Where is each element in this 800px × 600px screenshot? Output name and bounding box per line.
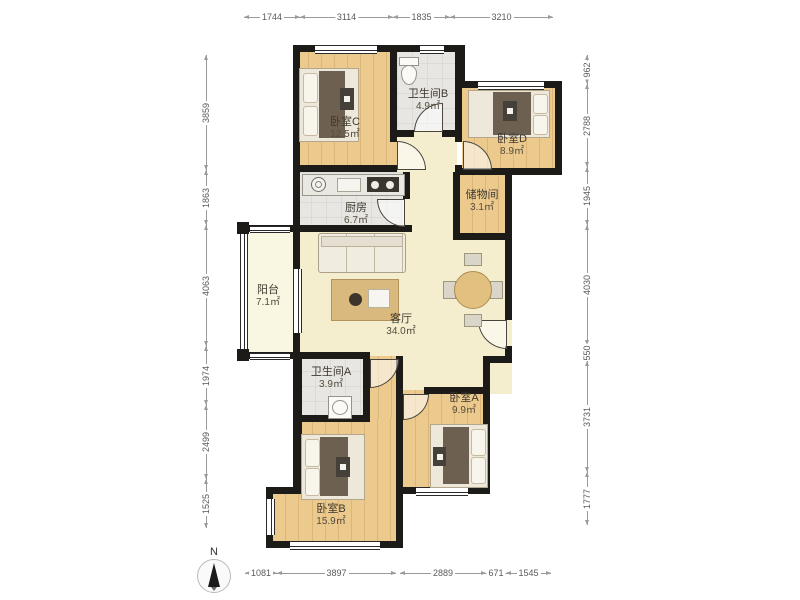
dim-bottom-1: 3897 bbox=[277, 566, 396, 580]
window-balcony-top bbox=[250, 226, 290, 233]
kettle-icon bbox=[349, 293, 362, 306]
window-bedroomA bbox=[416, 487, 468, 496]
dim-right-0: 962 bbox=[580, 55, 594, 84]
bed-bedroomB bbox=[301, 434, 365, 500]
dim-top-0: 1744 bbox=[244, 10, 300, 24]
dim-right-4: 550 bbox=[580, 345, 594, 361]
dim-right-5: 3731 bbox=[580, 361, 594, 472]
nightstand-bedroomA bbox=[433, 447, 446, 466]
dim-top-3: 3210 bbox=[450, 10, 553, 24]
dining-chair bbox=[464, 253, 482, 266]
pillow bbox=[471, 429, 486, 456]
dim-right-1: 2788 bbox=[580, 84, 594, 167]
window-bedroomD bbox=[478, 81, 544, 90]
dim-right-3: 4030 bbox=[580, 225, 594, 345]
stove-icon bbox=[367, 177, 399, 192]
wall-storage-left bbox=[453, 172, 460, 240]
window-balcony-bottom bbox=[250, 353, 290, 360]
dim-left-1: 1863 bbox=[199, 170, 213, 225]
pillow bbox=[533, 94, 548, 114]
wall-right-mid bbox=[505, 168, 512, 320]
room-label-bedroomB: 卧室B15.9㎡ bbox=[316, 503, 345, 528]
wall-divider-C-bathB bbox=[390, 45, 397, 142]
dim-top-1: 3114 bbox=[300, 10, 393, 24]
room-label-bedroomD: 卧室D8.9㎡ bbox=[497, 133, 527, 158]
wall-storage-bottom bbox=[453, 233, 512, 240]
nightstand-bedroomC bbox=[340, 88, 354, 110]
pillow bbox=[303, 73, 318, 103]
cutting-board-icon bbox=[337, 178, 361, 192]
dim-bottom-4: 1545 bbox=[506, 566, 551, 580]
window-balcony bbox=[240, 234, 248, 349]
dining-chair bbox=[464, 314, 482, 327]
dim-bottom-2: 2889 bbox=[400, 566, 486, 580]
pillow bbox=[533, 115, 548, 135]
nightstand-bedroomD bbox=[503, 101, 517, 121]
room-label-bedroomA: 卧室A9.9㎡ bbox=[449, 392, 478, 417]
nightstand-bedroomB bbox=[336, 457, 350, 477]
wall-bathB-bottom-left bbox=[390, 130, 414, 137]
dim-left-3: 1974 bbox=[199, 346, 213, 405]
floorplan-canvas: 卧室C12.5㎡ 卫生间B4.9㎡ 卧室D8.9㎡ 厨房6.7㎡ 储物间3.1㎡… bbox=[0, 0, 800, 600]
wall-bedroomC-bottom bbox=[293, 165, 397, 172]
dim-bottom-0: 1081 bbox=[245, 566, 277, 580]
window-bedroomC bbox=[315, 45, 377, 54]
room-bedroomB-floor-ext bbox=[273, 494, 303, 544]
compass-tail-icon bbox=[211, 587, 217, 591]
bed-bedroomA bbox=[430, 424, 488, 488]
wall-bathA-top bbox=[295, 352, 370, 359]
north-compass-icon: N bbox=[196, 546, 232, 593]
compass-dial bbox=[197, 559, 231, 593]
wall-bathB-right-lower bbox=[455, 88, 462, 142]
dim-left-2: 4063 bbox=[199, 225, 213, 346]
pillow bbox=[305, 439, 320, 467]
balcony-glass-door bbox=[293, 269, 302, 333]
bed-bedroomD bbox=[468, 90, 550, 138]
room-label-bedroomC: 卧室C12.5㎡ bbox=[330, 116, 360, 141]
dim-left-5: 1525 bbox=[199, 479, 213, 528]
wall-divider-AB bbox=[396, 356, 403, 548]
burner-icon bbox=[386, 181, 394, 189]
sofa bbox=[318, 233, 406, 273]
dim-bottom-3: 671 bbox=[486, 566, 506, 580]
window-bedroomB bbox=[290, 541, 380, 550]
kitchen-counter bbox=[302, 174, 405, 196]
pillow bbox=[305, 468, 320, 496]
pillow bbox=[471, 457, 486, 484]
dim-right-2: 1945 bbox=[580, 167, 594, 225]
wall-bathA-right bbox=[363, 352, 370, 422]
balcony-corner-post-top bbox=[237, 222, 249, 234]
window-bedroomB-left bbox=[266, 499, 275, 535]
duvet bbox=[443, 427, 469, 484]
compass-needle-icon bbox=[208, 563, 220, 587]
wall-right-outer bbox=[555, 81, 562, 175]
dim-right-6: 1777 bbox=[580, 472, 594, 525]
room-label-balcony: 阳台7.1㎡ bbox=[256, 284, 280, 309]
pillow bbox=[303, 106, 318, 136]
burner-icon bbox=[371, 181, 379, 189]
room-label-kitchen: 厨房6.7㎡ bbox=[344, 202, 368, 227]
dim-left-0: 3859 bbox=[199, 55, 213, 170]
room-label-living: 客厅34.0㎡ bbox=[386, 313, 415, 338]
washer-icon bbox=[328, 396, 352, 419]
room-label-bathA: 卫生间A3.9㎡ bbox=[311, 366, 351, 391]
room-label-bathB: 卫生间B4.9㎡ bbox=[408, 88, 448, 113]
dining-table bbox=[454, 271, 492, 309]
window-bathB bbox=[420, 45, 444, 54]
room-label-storage: 储物间3.1㎡ bbox=[466, 189, 499, 214]
balcony-corner-post-bottom bbox=[237, 349, 249, 361]
dim-top-2: 1835 bbox=[393, 10, 450, 24]
north-label: N bbox=[196, 546, 232, 558]
dim-left-4: 2499 bbox=[199, 405, 213, 479]
sink-icon bbox=[311, 177, 326, 192]
tray-icon bbox=[368, 289, 390, 308]
